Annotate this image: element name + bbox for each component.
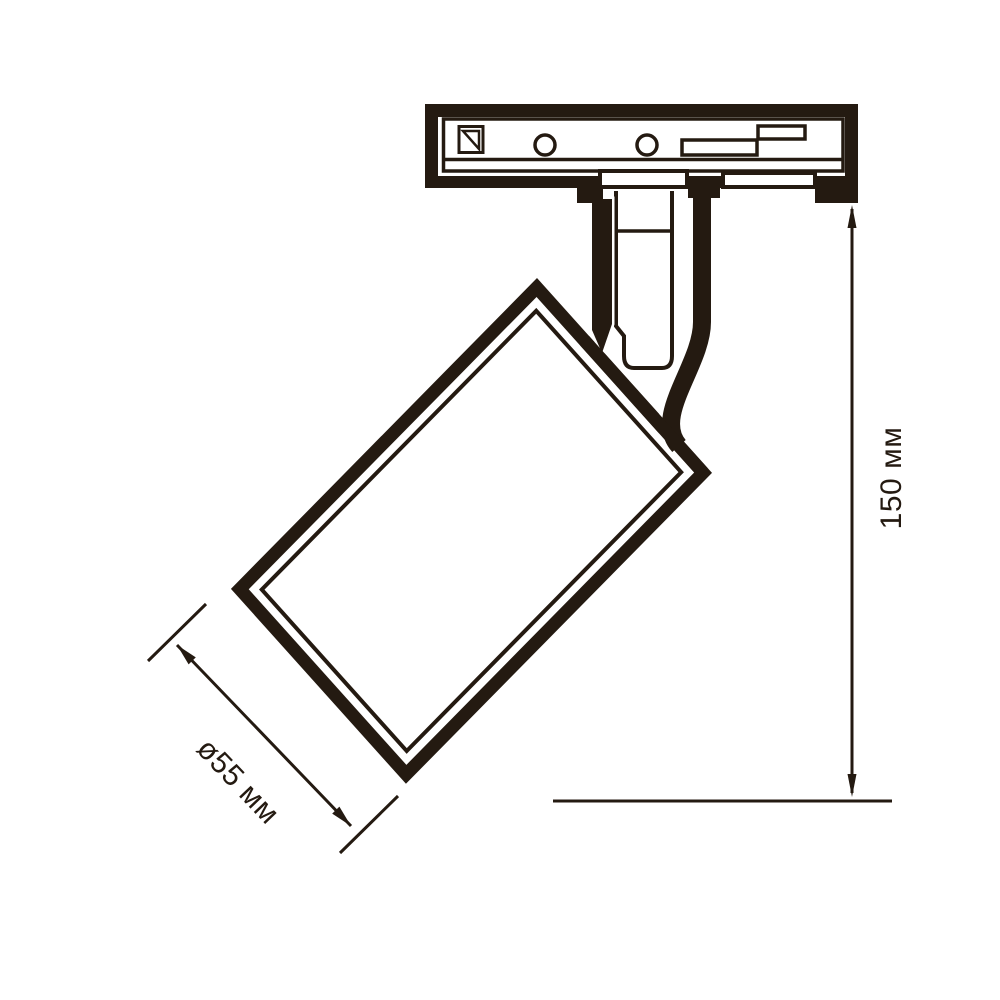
track-tab-center: [600, 171, 687, 187]
diameter-extension-tick-upper: [148, 604, 206, 661]
track-rail: [425, 104, 858, 203]
track-step-middle: [688, 176, 720, 198]
track-top-band: [425, 104, 858, 117]
height-dimension-label: 150 мм: [875, 427, 908, 530]
arrowhead-top: [848, 205, 857, 228]
diameter-dimension-label: ø55 мм: [190, 732, 286, 830]
drawing-canvas: ø55 мм 150 мм: [0, 0, 1000, 1000]
track-spotlight-technical-drawing: ø55 мм 150 мм: [0, 0, 1000, 1000]
arrowhead-bottom: [848, 774, 857, 797]
stem-channel: [616, 191, 672, 368]
track-tab-right: [723, 173, 815, 187]
stem-left-bar: [592, 199, 612, 353]
track-left-band: [425, 104, 438, 188]
track-step-right: [815, 176, 858, 203]
